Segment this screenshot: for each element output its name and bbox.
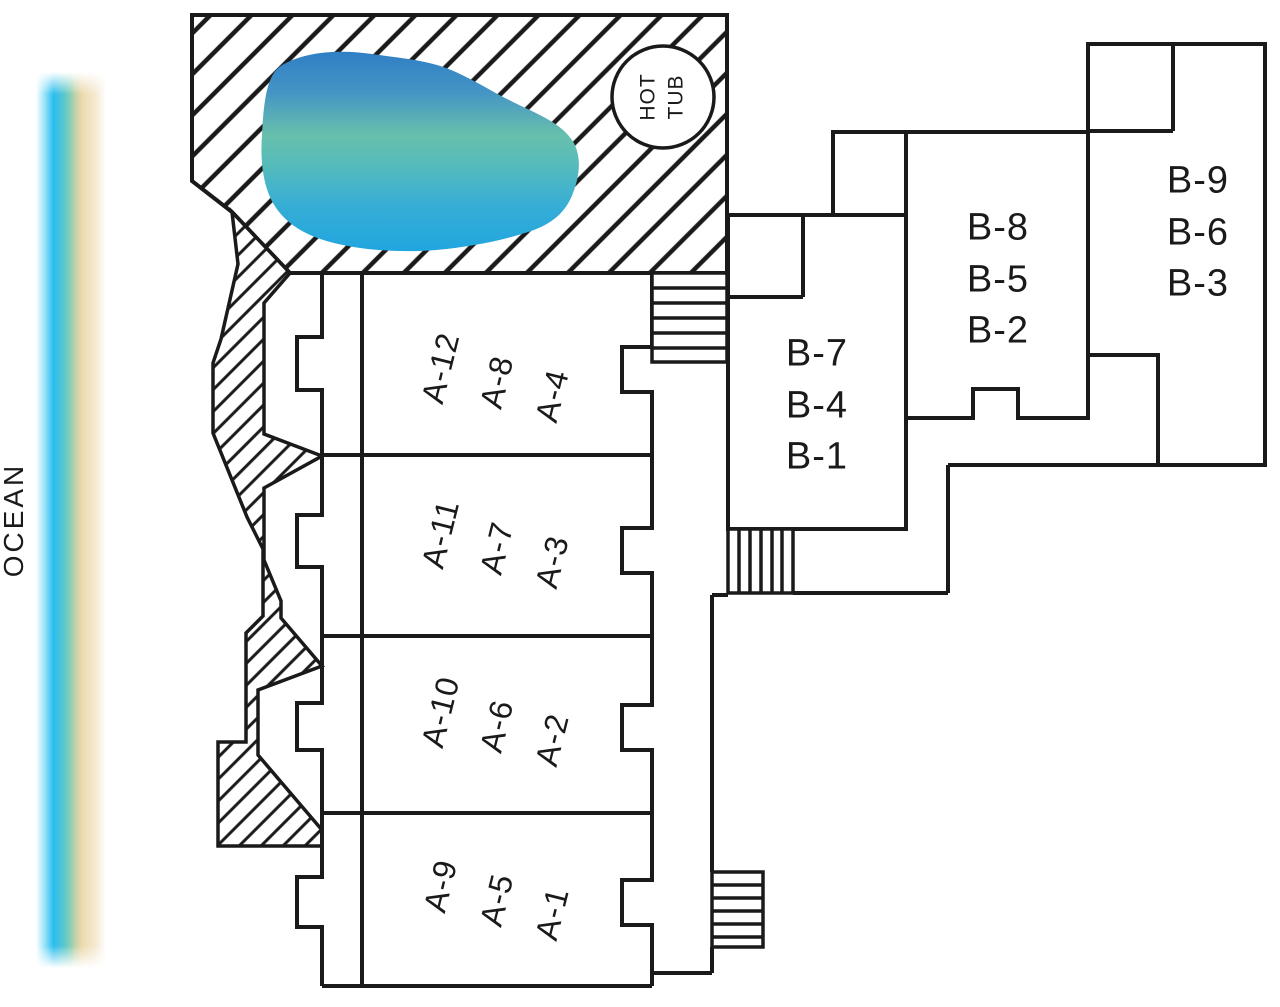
b8-block (906, 132, 1088, 418)
building-a-left-wall (297, 273, 322, 986)
building-b-outline (728, 44, 1265, 593)
building-a-outline (297, 273, 728, 986)
stairs-bottom (712, 872, 763, 947)
b9-block (1088, 44, 1265, 465)
ocean-beach-strip (36, 72, 106, 968)
site-plan-page: OCEAN HOT TUB A-12 A-8 A-4 A-11 A-7 A-3 … (0, 0, 1280, 1007)
b7-block (728, 215, 906, 529)
b8-annex-square (833, 132, 906, 215)
stairs-middle (728, 529, 793, 593)
hot-tub-circle (612, 46, 714, 148)
stairs-top (652, 273, 727, 362)
floor-plan-canvas (0, 0, 1280, 1007)
building-a-right-wall (622, 273, 652, 986)
